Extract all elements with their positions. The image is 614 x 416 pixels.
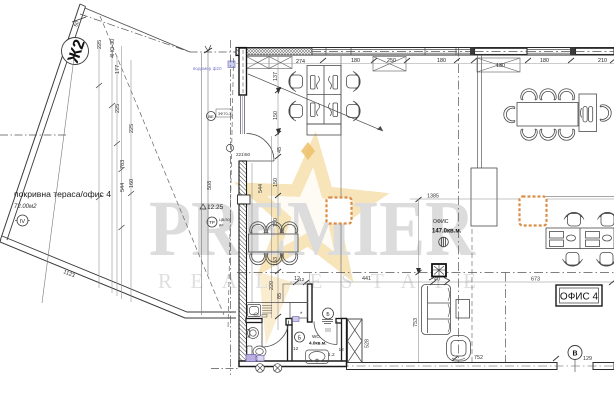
- svg-text:12: 12: [339, 347, 345, 353]
- svg-text:1.2: 1.2: [328, 352, 335, 358]
- svg-text:12: 12: [299, 277, 305, 283]
- svg-text:до: до: [219, 223, 223, 227]
- svg-text:544: 544: [120, 183, 126, 192]
- svg-text:Б: Б: [326, 312, 330, 318]
- svg-text:177: 177: [115, 65, 121, 74]
- svg-text:225: 225: [97, 40, 103, 49]
- svg-text:ВЕ: ВЕ: [208, 114, 214, 119]
- svg-text:180: 180: [351, 58, 360, 64]
- svg-text:147.0кв.м.: 147.0кв.м.: [432, 229, 462, 235]
- svg-text:220: 220: [269, 281, 275, 290]
- svg-text:В: В: [572, 351, 577, 358]
- svg-text:12.25: 12.25: [207, 204, 224, 211]
- svg-text:180: 180: [437, 58, 446, 64]
- svg-text:150: 150: [273, 111, 279, 120]
- svg-text:72.00м2: 72.00м2: [14, 204, 37, 210]
- svg-text:1123: 1123: [62, 269, 75, 279]
- svg-text:ОФИС 4: ОФИС 4: [560, 292, 599, 303]
- svg-text:441: 441: [362, 276, 371, 282]
- svg-text:221\50: 221\50: [236, 152, 250, 157]
- svg-text:Б: Б: [298, 336, 302, 342]
- svg-text:WC: WC: [312, 334, 320, 339]
- svg-text:544: 544: [258, 184, 264, 193]
- svg-text:ЦВ/30: ЦВ/30: [219, 218, 230, 222]
- svg-text:753: 753: [413, 318, 419, 327]
- svg-text:50: 50: [73, 20, 81, 27]
- svg-text:150: 150: [273, 178, 279, 187]
- svg-text:85: 85: [277, 293, 283, 299]
- svg-text:IV: IV: [20, 219, 26, 225]
- svg-text:783: 783: [120, 160, 126, 169]
- svg-text:274: 274: [296, 59, 305, 65]
- svg-text:752: 752: [474, 355, 483, 361]
- svg-text:водомер ф20: водомер ф20: [193, 66, 222, 71]
- svg-text:ТР: ТР: [209, 220, 215, 225]
- svg-text:129: 129: [583, 356, 592, 362]
- svg-text:1385: 1385: [427, 194, 439, 200]
- svg-text:покривна тераса/офис 4: покривна тераса/офис 4: [14, 189, 111, 199]
- svg-text:225: 225: [115, 104, 121, 113]
- svg-text:45: 45: [277, 147, 283, 153]
- svg-text:4.0кв.м.: 4.0кв.м.: [309, 341, 326, 346]
- svg-text:225: 225: [129, 124, 135, 133]
- svg-text:130: 130: [496, 63, 505, 69]
- svg-text:*: *: [300, 312, 303, 318]
- svg-text:12: 12: [293, 346, 299, 352]
- svg-text:160: 160: [129, 179, 135, 188]
- svg-text:ОФИС: ОФИС: [433, 219, 449, 225]
- svg-text:4НО-30: 4НО-30: [110, 39, 116, 58]
- svg-text:673: 673: [531, 277, 540, 283]
- svg-text:210: 210: [598, 58, 607, 64]
- svg-text:3Ф70-3: 3Ф70-3: [218, 111, 232, 116]
- svg-text:250: 250: [387, 58, 396, 64]
- svg-text:528: 528: [365, 339, 371, 348]
- svg-text:137: 137: [273, 72, 279, 81]
- svg-text:180: 180: [540, 58, 549, 64]
